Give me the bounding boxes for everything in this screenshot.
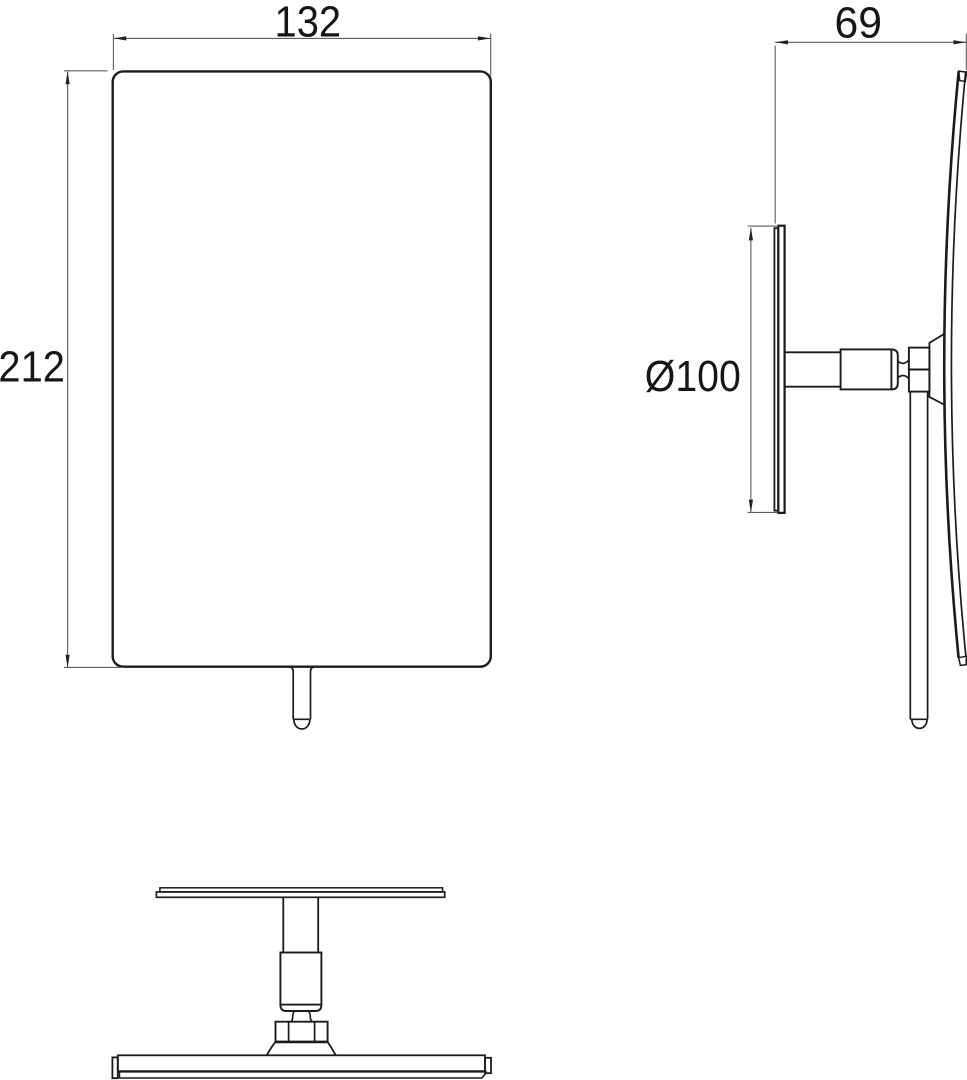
svg-text:69: 69 [835,0,883,47]
svg-text:212: 212 [0,343,65,392]
svg-text:132: 132 [275,0,342,47]
svg-text:Ø100: Ø100 [645,352,741,401]
